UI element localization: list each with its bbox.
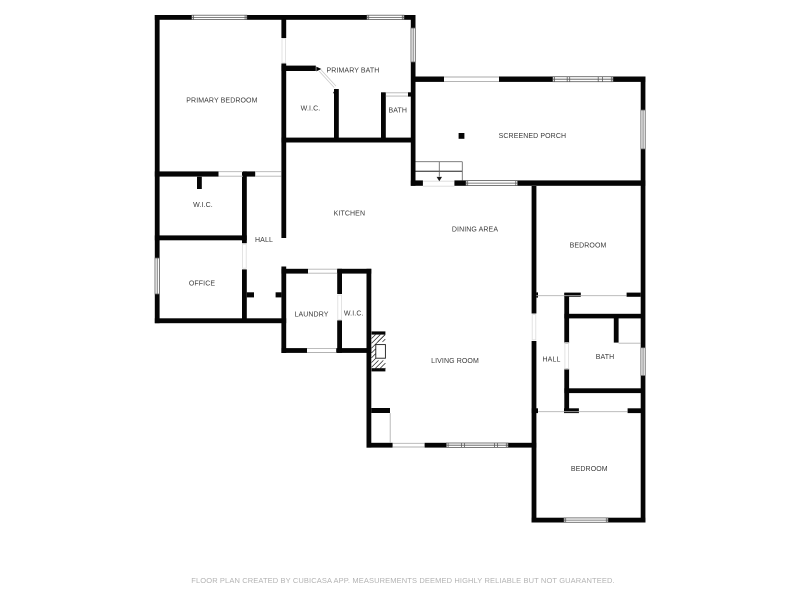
svg-text:BATH: BATH [389,107,408,114]
svg-text:HALL: HALL [543,356,561,363]
svg-text:FLOOR PLAN CREATED BY CUBICASA: FLOOR PLAN CREATED BY CUBICASA APP. MEAS… [191,576,614,585]
svg-text:PRIMARY BATH: PRIMARY BATH [327,68,380,75]
svg-text:W.I.C.: W.I.C. [193,202,213,209]
svg-text:LIVING ROOM: LIVING ROOM [431,358,479,365]
svg-text:BEDROOM: BEDROOM [570,243,607,250]
svg-text:PRIMARY BEDROOM: PRIMARY BEDROOM [186,98,257,105]
svg-text:W.I.C.: W.I.C. [344,311,364,318]
svg-text:DINING AREA: DINING AREA [452,226,498,233]
svg-text:KITCHEN: KITCHEN [334,210,365,217]
svg-text:W.I.C.: W.I.C. [301,106,321,113]
svg-text:OFFICE: OFFICE [189,280,215,287]
svg-text:HALL: HALL [255,237,273,244]
svg-text:BEDROOM: BEDROOM [571,466,608,473]
svg-text:LAUNDRY: LAUNDRY [294,312,328,319]
svg-text:SCREENED PORCH: SCREENED PORCH [499,133,567,140]
svg-text:BATH: BATH [596,354,615,361]
